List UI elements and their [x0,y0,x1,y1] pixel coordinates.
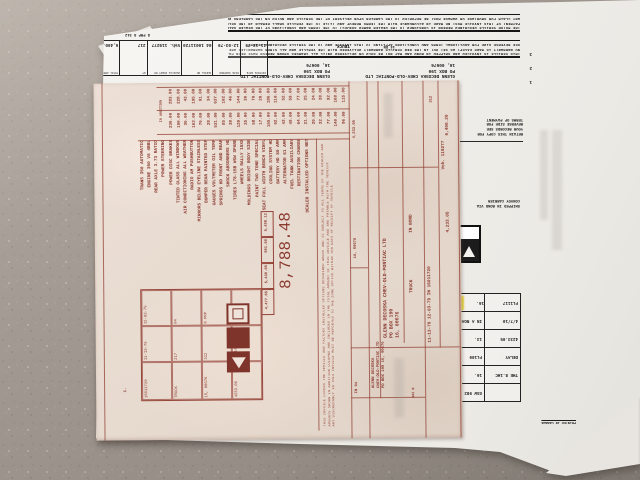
ship-to-line: PO BOX 190 [240,67,330,72]
header-value: 12-03-79 [214,42,238,47]
header-column: VEHICLE IDENT NOVeh. 119277 [147,41,182,75]
photo-stage: THIS VEHICLE IS INVOICED AND SHIPPED IN … [0,0,640,480]
showthrough-smudge [540,130,548,220]
dates-row: 11-13-79 12-03-79 IN 16011720 [427,266,433,342]
ship-to-line: 16, 00676 [395,238,402,338]
amount-secondary: 4,233.05 [446,211,451,232]
ship-table-cell: 4233.05 [484,330,520,347]
bond-code: 14 DN [384,43,395,48]
ship-table-cell [484,384,520,401]
ship-table-cell: IN A ROAD [459,319,484,323]
margin-rule [101,84,105,441]
price-value: 228.00 [176,88,184,110]
terms-line: THE MOTOR VEHICLE DESCRIBED HEREON IS CO… [228,25,520,29]
total-cell: 5,498.12 [261,211,274,237]
price-value: 144.00 [236,87,244,109]
gm-mark-triangle-icon [463,246,475,257]
band-rule-v [350,267,368,268]
ship-table-cell: 13. [474,337,484,341]
price-value: 58.00 [251,111,259,133]
price-value: 43.00 [281,111,289,133]
logo-solid-square-icon [227,327,250,348]
price-value: 59.00 [288,87,296,109]
notice-line: YOUR RECORDS SEE [451,125,523,130]
price-value: 43.00 [183,88,191,110]
logo-outline-square-icon [226,303,249,324]
vehicle-type-label: TRUCK [409,280,414,293]
header-label: VEHICLE IDENT NO [149,71,181,74]
price-value: 77.00 [326,111,334,133]
band-value: IN 04 [355,382,359,393]
vehicle-type-label: TRUCK [337,43,350,48]
code-value: 312 [430,96,434,103]
paper-stack: THIS VEHICLE IS INVOICED AND SHIPPED IN … [0,0,640,480]
price-value: 30.00 [243,87,251,109]
price-value: 236.00 [169,112,177,134]
price-value: 38.00 [229,111,237,133]
section-rule [316,139,320,431]
ship-to-line: 16, 00676 [240,62,330,67]
band-rule [422,81,426,438]
header-value: 04 16011720 [183,42,211,47]
band-rule [437,81,440,348]
price-value: 168.00 [333,86,341,108]
price-value: 49.00 [289,111,297,133]
header-value: 217 [121,42,145,47]
total-cell: 591.50 [261,237,274,263]
sold-to-block: GLENN DECOSKA CHEV-OLD-PONTIAC LTDPO BOX… [365,62,455,78]
totals-cell-row: 4,477.655,439.05591.505,498.12 [261,211,275,315]
ship-table-cell: 16. [476,301,484,305]
total-extra-cell: 8,788.48 [277,262,295,289]
terms-line: THIS VEHICLE IS INVOICED AND SHIPPED IN … [228,51,520,55]
price-value: 283.00 [168,88,176,110]
price-column-header: IN ADDITION [159,85,163,137]
price-value: 17.00 [259,111,267,133]
price-value: 21.00 [304,111,312,133]
ship-table-cell: DELAY [484,348,520,365]
price-value: 46.00 [228,87,236,109]
price-value: 195.00 [191,88,199,110]
margin-mark: 1. [124,388,128,393]
price-value: 25.00 [303,87,311,109]
vehicle-number: Veh. 119277 [441,141,446,170]
ship-table-cell: FL100 [469,355,484,359]
sold-to-line: GLENN DECOSKA CHEV-OLD-PONTIAC LTD [365,73,455,78]
pink-invoice-content: 1. 1601172011-13-7912-03-79TRUCK2170416,… [93,80,462,440]
price-value: 25.00 [244,111,252,133]
ship-table-cell: GSW 982 [464,391,484,395]
header-column: WT217 [119,41,146,75]
header-column: DATE SHIPPED12-03-79 [212,41,239,75]
header-label: DATE SHIPPED [214,71,238,74]
terms-line: ANY CLAIM FOR SHORTAGE OR DAMAGE MUST BE… [228,16,520,20]
page-number: 3 [529,46,532,60]
divider-rule [451,141,523,142]
price-value: 92.00 [274,111,282,133]
form-number: 902 B [412,388,416,398]
band-value: 4,233.05 [353,120,357,138]
price-value: 34.00 [206,88,214,110]
ship-table-cell: FL1117 [484,294,520,311]
total-cell: 5,439.05 [261,263,274,289]
ship-to-line: GLENN DECOSKA CHEV-OLD-PONTIAC LTD [240,73,330,78]
header-column: SERIAL NO04 16011720 [181,41,212,75]
grid-cell: TRUCK [172,362,202,400]
band-value: 16, 00676 [354,238,358,259]
bond-label: IN BOND [409,214,414,232]
header-value: 6,400.20 [94,42,118,47]
price-value: 102.00 [221,87,229,109]
notice-paragraph-a: RETAIN THIS COPY FORYOUR RECORDS SEEREVE… [451,116,523,135]
price-value: 64.00 [296,111,304,133]
price-value: 32.00 [319,111,327,133]
price-value: 140.00 [334,110,342,132]
sold-to-line: PO BOX 190 [365,67,455,72]
page-number: 2 [529,60,532,74]
sold-to-small-block: GLENN DECOSKACHEV-OLD-PONTIAC LTDPO BOX … [372,341,387,388]
amount-due: 6,400.20 [445,114,450,135]
option-line: DEALER INSTALLED OPTIONS NET [304,139,313,339]
form-footer-text: PRINTED IN CANADA [541,420,576,424]
price-value: 110.00 [273,87,281,109]
price-value: 531.00 [214,111,222,133]
dealer-logo-strip [226,303,250,372]
fine-print-block: THIS INVOICE COVERS THE VEHICLE AND FACT… [321,144,337,427]
band-rule [366,81,370,438]
ship-to-large-block: GLENN DECOSKA CHEV-OLD-PONTIAC LTDPO BOX… [383,238,402,338]
terms-block-upper: THE MOTOR VEHICLE DESCRIBED HEREON IS CO… [228,14,520,32]
header-label: WT [121,71,145,74]
price-value: 36.00 [184,112,192,134]
header-column: TOTAL AMOUNT6,400.20 [93,41,119,75]
header-label: SERIAL NO [183,71,211,74]
price-value: 91.00 [198,88,206,110]
showthrough-smudge [384,93,393,138]
notice-line: REVERSE SIDE FOR [451,121,523,126]
header-value: Veh. 119277 [149,42,181,47]
price-value: 76.00 [199,112,207,134]
ship-table-cell: 16. [474,373,484,377]
showthrough-smudge [552,130,562,250]
header-label: TOTAL AMOUNT [94,71,118,74]
aux-code: 8 PRP 8 312 [125,31,150,36]
price-column-a: 236.00190.0036.00163.0076.0028.00531.008… [169,110,349,134]
sold-to-line: PO BOX 190 16, 00676 [382,341,387,388]
band-rule-v [349,167,438,169]
band-rule-v [351,346,460,348]
price-column-b: 283.00228.0043.00195.0091.0034.00637.001… [168,86,348,110]
sold-to-line: 16, 00676 [365,62,455,67]
price-value: 96.00 [341,110,349,132]
ship-table-cell: 4/7/10 [484,312,520,329]
logo-flag-icon [227,351,250,372]
price-value: 637.00 [213,87,221,109]
terms-line: PAYMENT OF THIS INVOICE MUST BE MADE IN … [228,20,520,24]
terms-block-lower: THIS VEHICLE IS INVOICED AND SHIPPED IN … [228,40,520,58]
price-value: 155.00 [266,111,274,133]
ship-table-cell: THE 8.1HC [484,366,520,383]
page-number-list: 123 [529,46,532,88]
price-value: 38.00 [318,87,326,109]
terms-line: NO WARRANTY IS MADE EXCEPT AS SET OUT IN… [228,46,520,50]
price-value: 20.00 [311,111,319,133]
showthrough-smudge [394,358,405,418]
ship-to-block: GLENN DECOSKA CHEV-OLD-PONTIAC LTDPO BOX… [240,62,330,78]
total-cell: 4,477.65 [261,289,274,315]
grid-cell: 16011720 [142,362,172,400]
terms-line: SEE REVERSE SIDE FOR ADDITIONAL TERMS AN… [228,42,520,46]
notice-line: RETAIN THIS COPY FOR [451,130,523,135]
header-value: 11-13-79 [242,42,266,47]
notice-line: TERMS OF PAYMENT [451,116,523,121]
page-number: 1 [529,74,532,88]
price-value: 20.00 [258,87,266,109]
pink-invoice-sheet: 1. 1601172011-13-7912-03-79TRUCK2170416,… [93,80,462,440]
